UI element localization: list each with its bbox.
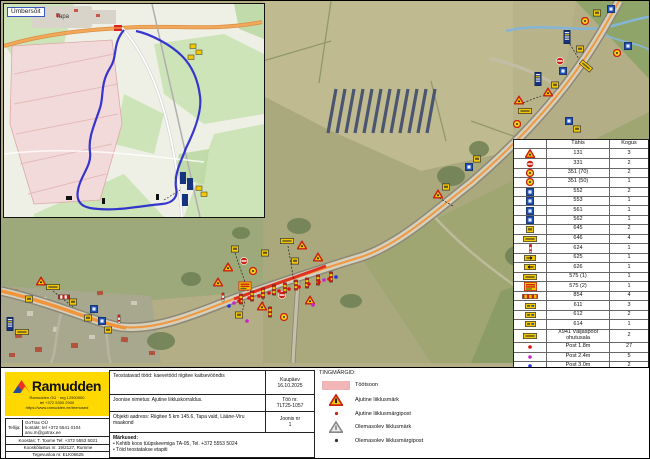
detour-inset-map: Tapa Ümbersõit (3, 3, 265, 218)
sign-code: 562 (547, 216, 610, 224)
sign-table-row: 6251 (514, 253, 648, 262)
sign-table-row: 6122 (514, 310, 648, 319)
sign-table-row: 1313 (514, 148, 648, 158)
sign-table-row: 3312 (514, 158, 648, 167)
sign-code: 575 (2) (547, 282, 610, 291)
blue-icon (514, 216, 547, 224)
warn-icon (514, 149, 547, 158)
dotM-icon (514, 353, 547, 361)
description-row: Teostatavad tööd: kaevetööd riigitee kai… (110, 371, 314, 395)
sign-code: 626 (547, 263, 610, 271)
note-line: • Töid teostatakse etapiti (113, 447, 311, 453)
sign-table-row: 5522 (514, 187, 648, 196)
sign-table-row: 6464 (514, 234, 648, 243)
legend-item: Olemasolev liiklusmärk (319, 421, 519, 433)
legend-item-label: Olemasolev liiklusmärk (353, 424, 411, 430)
title-block: Ramudden Ramudden OÜ · reg 12900900tel +… (1, 367, 650, 459)
sign-table-row: 8544 (514, 291, 648, 300)
sign-qty: 1 (610, 244, 648, 253)
sign-code: 553 (547, 197, 610, 205)
sign-qty: 2 (610, 330, 648, 343)
noentry-icon (514, 159, 547, 167)
inset-town-label: Tapa (56, 14, 70, 20)
sign-table-row: 575 (2)1 (514, 281, 648, 291)
sign-table-row: 5621 (514, 215, 648, 224)
company-name: Ramudden (32, 378, 101, 394)
sign-qty: 2 (610, 225, 648, 233)
sign-code: 552 (547, 188, 610, 196)
sign-qty: 27 (610, 343, 648, 351)
sign-code: Post 2.4m (547, 353, 610, 361)
legend-item-label: Töötsoon (353, 382, 378, 388)
drawing-no-value: 1 (289, 422, 292, 428)
legend-item-label: Ajutine liiklusmärk (353, 397, 399, 403)
blue-icon (514, 206, 547, 214)
permit-row: Tegevusloa nr. ELK06625 (6, 451, 110, 458)
sign-code: X941 Väljaspool ohutusala (547, 330, 610, 343)
date-value: 16.10.2025 (277, 383, 302, 389)
drawing-name: Joonise nimetus: Ajutine liikluskorraldu… (110, 395, 266, 411)
sign-qty: 2 (610, 188, 648, 196)
yb611-icon (514, 311, 547, 319)
client-label: Tellija: (8, 420, 23, 436)
sign-table-row: 6113 (514, 300, 648, 309)
sign-table-row: 351 (50)1 (514, 177, 648, 186)
address-row: Objekti aadress: Riigitee 5 km 145.6, Ta… (110, 412, 314, 433)
sign-table-body: 13133312351 (70)2351 (50)155225531561156… (514, 148, 648, 379)
ta-plan-sheet: Tapa Ümbersõit Tähis Kogus 13133312351 (… (0, 0, 650, 459)
ybw-icon (514, 330, 547, 343)
sign-code: 854 (547, 292, 610, 300)
sign-table-header: Tähis Kogus (514, 140, 648, 148)
sign-code: 331 (547, 159, 610, 167)
drawing-info-table: Teostatavad tööd: kaevetööd riigitee kai… (109, 370, 315, 458)
legend-item: Ajutine liiklusmärgipost (319, 411, 519, 417)
sign-table-header-symbol (514, 140, 547, 148)
object-address: Objekti aadress: Riigitee 5 km 145.6, Ta… (110, 412, 266, 432)
dotKs-icon (319, 438, 353, 443)
work-no-value: TLT25-1057 (277, 403, 304, 409)
sign-code: 645 (547, 225, 610, 233)
sign-code: 351 (70) (547, 169, 610, 177)
ybw-icon (514, 273, 547, 281)
client-line: anu.m@gotrax.ee (25, 430, 108, 435)
ybr-icon (514, 282, 547, 291)
sign-table-row: 5611 (514, 205, 648, 214)
sign-qty: 1 (610, 206, 648, 214)
notes-list: • Kehtib koos tüüpskeemiga TA-05, Tel. +… (113, 441, 311, 454)
sign-table-row: 351 (70)2 (514, 168, 648, 177)
arrowR-icon (514, 254, 547, 262)
sign-code: 611 (547, 301, 610, 309)
sign-table-header-qty: Kogus (610, 140, 648, 148)
sign-table-row: 6141 (514, 319, 648, 328)
sign-code: 351 (50) (547, 178, 610, 186)
arrowL-icon (514, 263, 547, 271)
sign-table-row: 575 (1)1 (514, 272, 648, 281)
sign-qty: 1 (610, 273, 648, 281)
sign-table-row: 5531 (514, 196, 648, 205)
sign-table-row: 6241 (514, 243, 648, 253)
sign-qty: 1 (610, 282, 648, 291)
speed-icon (514, 178, 547, 186)
company-contact-lines: Ramudden OÜ · reg 12900900tel +372 5300 … (26, 395, 89, 410)
sign-qty: 1 (610, 254, 648, 262)
sign-quantity-table: Tähis Kogus 13133312351 (70)2351 (50)155… (513, 139, 649, 381)
legend-item-label: Olemasolev liiklusmärgipost (353, 438, 423, 444)
contact-table: Tellija: GoTrax OÜkontakt: tel +372 5541… (5, 418, 111, 459)
sign-table-header-code: Tähis (547, 140, 610, 148)
legend-item: Olemasolev liiklusmärgipost (319, 438, 519, 444)
sign-qty: 2 (610, 311, 648, 319)
dotR-icon (514, 343, 547, 351)
legend-item: Töötsoon (319, 381, 519, 390)
post-icon (514, 244, 547, 253)
sign-qty: 4 (610, 292, 648, 300)
sign-qty: 1 (610, 263, 648, 271)
dotRs-icon (319, 411, 353, 416)
blue-icon (514, 197, 547, 205)
striped854-icon (514, 292, 547, 300)
legend-item: Ajutine liiklusmärk (319, 394, 519, 406)
sign-table-row: 6452 (514, 224, 648, 233)
sign-code: 575 (1) (547, 273, 610, 281)
sign-qty: 4 (610, 235, 648, 243)
ramudden-logo-box: Ramudden Ramudden OÜ · reg 12900900tel +… (5, 372, 109, 416)
sign-code: 646 (547, 235, 610, 243)
legend-item-label: Ajutine liiklusmärgipost (353, 411, 411, 417)
work-description: Teostatavad tööd: kaevetööd riigitee kai… (110, 371, 266, 394)
drawing-name-row: Joonise nimetus: Ajutine liikluskorraldu… (110, 395, 314, 412)
sign-table-row: 6261 (514, 262, 648, 271)
pinkrect-icon (319, 381, 353, 390)
company-contact-line: https://www.ramudden.ee/teenused (26, 405, 89, 410)
detour-label: Ümbersõit (7, 7, 45, 17)
sign-qty: 1 (610, 178, 648, 186)
yb611-icon (514, 320, 547, 328)
inset-map-graphic: Tapa (4, 4, 264, 217)
sign-qty: 5 (610, 353, 648, 361)
ybw-icon (514, 235, 547, 243)
speed-icon (514, 169, 547, 177)
sign-code: 614 (547, 320, 610, 328)
blue-icon (514, 188, 547, 196)
sign-code: 624 (547, 244, 610, 253)
gtri-icon (319, 421, 353, 433)
sign-table-row: X941 Väljaspool ohutusala2 (514, 329, 648, 343)
notes-row: Märkused: • Kehtib koos tüüpskeemiga TA-… (110, 433, 314, 457)
author-row: Koostas: T. Toome Tel: +372 5553 5021 (6, 436, 110, 443)
sign-code: Post 1.8m (547, 343, 610, 351)
legend-title: TINGMÄRGID: (319, 370, 519, 376)
sign-code: 625 (547, 254, 610, 262)
yb611-icon (514, 301, 547, 309)
sign-table-row: Post 1.8m27 (514, 342, 648, 351)
sign-code: 612 (547, 311, 610, 319)
client-lines: GoTrax OÜkontakt: tel +372 5541 0104anu.… (23, 420, 108, 436)
sign-table-row: Post 2.4m5 (514, 352, 648, 361)
sign-qty: 2 (610, 169, 648, 177)
sign-qty: 3 (610, 301, 648, 309)
client-row: Tellija: GoTrax OÜkontakt: tel +372 5541… (6, 419, 110, 436)
legend-items: TöötsoonAjutine liiklusmärkAjutine liikl… (319, 381, 519, 444)
sign-qty: 1 (610, 216, 648, 224)
approval-row: Kooskõlastus nr. 19/2127, Rumme (6, 444, 110, 451)
yb-icon (514, 225, 547, 233)
sign-qty: 3 (610, 149, 648, 158)
ramudden-logo-icon (13, 380, 30, 393)
sign-qty: 1 (610, 320, 648, 328)
sign-code: 131 (547, 149, 610, 158)
warnbig-icon (319, 394, 353, 406)
map-legend: TINGMÄRGID: TöötsoonAjutine liiklusmärkA… (319, 370, 519, 444)
sign-qty: 1 (610, 197, 648, 205)
sign-code: 561 (547, 206, 610, 214)
sign-qty: 2 (610, 159, 648, 167)
